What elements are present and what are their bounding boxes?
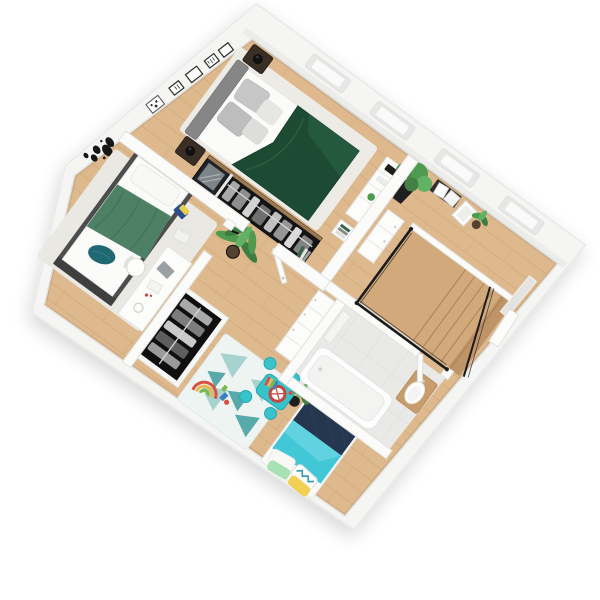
floorplan-svg bbox=[0, 0, 600, 600]
floorplan-3d-render bbox=[0, 0, 600, 600]
bathroom-door-open bbox=[417, 354, 423, 382]
